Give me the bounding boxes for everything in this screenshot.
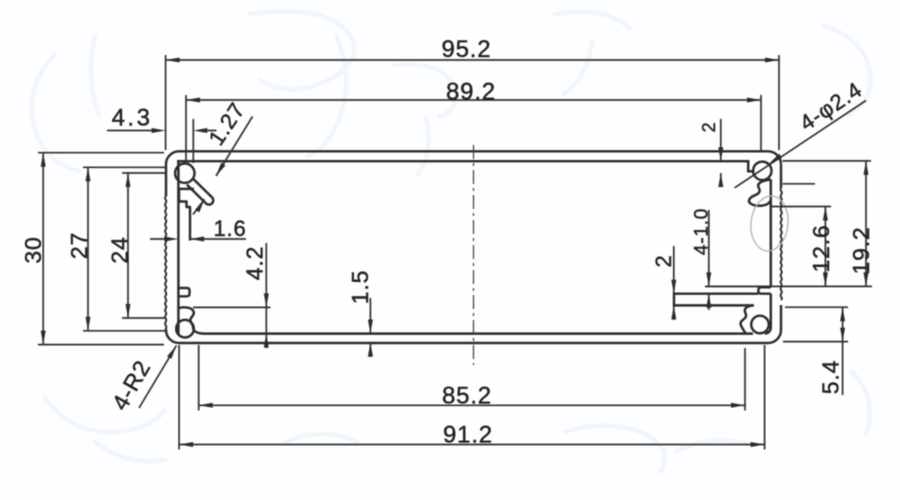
svg-text:89.2: 89.2 (446, 79, 496, 106)
svg-text:4-R2: 4-R2 (107, 356, 156, 415)
svg-text:2: 2 (651, 254, 676, 267)
svg-text:12.6: 12.6 (808, 225, 834, 273)
svg-text:4-1.0: 4-1.0 (692, 208, 713, 255)
svg-text:30: 30 (20, 236, 46, 263)
svg-text:19.2: 19.2 (848, 227, 874, 275)
svg-text:91.2: 91.2 (443, 421, 493, 448)
svg-text:2: 2 (699, 122, 719, 133)
svg-text:5.4: 5.4 (818, 360, 844, 394)
svg-text:4.3: 4.3 (112, 105, 153, 132)
svg-text:95.2: 95.2 (441, 36, 491, 63)
svg-text:85.2: 85.2 (442, 382, 492, 409)
svg-text:24: 24 (107, 236, 133, 263)
svg-text:4.2: 4.2 (242, 246, 268, 280)
svg-text:1.5: 1.5 (347, 270, 373, 304)
svg-text:1.6: 1.6 (214, 216, 247, 241)
svg-text:27: 27 (66, 232, 92, 259)
svg-text:1.27: 1.27 (204, 98, 250, 150)
